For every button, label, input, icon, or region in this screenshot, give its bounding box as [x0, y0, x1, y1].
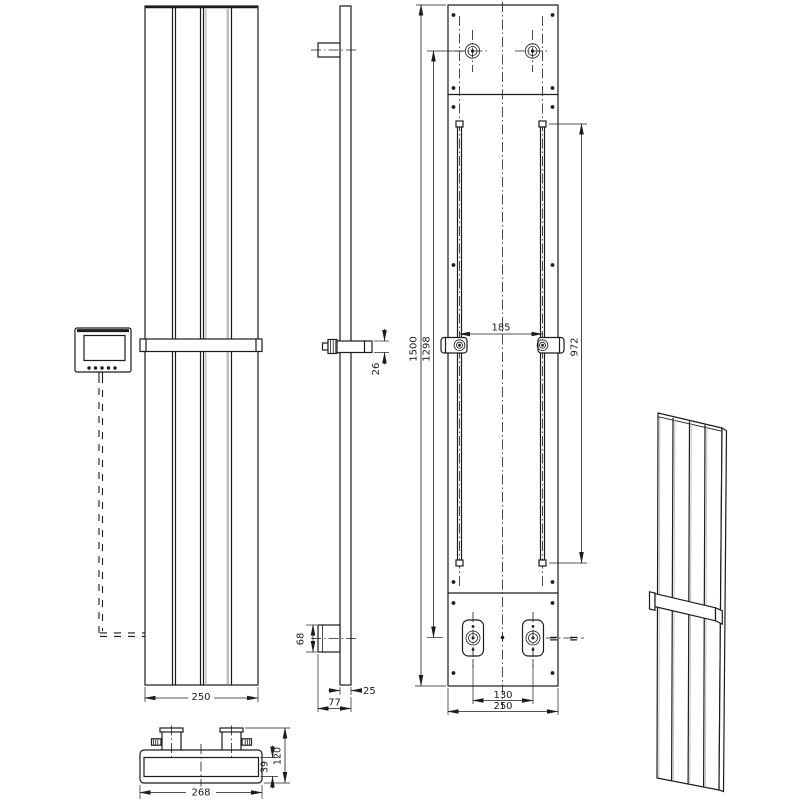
controller-screen: [84, 336, 125, 361]
dim-label-towel-height: 26: [371, 363, 382, 376]
dim-towel-height: 26: [371, 329, 389, 375]
screw-hole: [551, 601, 555, 605]
towel-bar-front: [140, 339, 262, 352]
dim-label-rail-length: 972: [570, 337, 581, 356]
bracket-screw-center: [458, 344, 461, 347]
screw-hole: [551, 580, 555, 584]
dim-label-profile-depth: 25: [363, 686, 376, 697]
front-view: 250: [140, 6, 262, 703]
controller-button: [107, 366, 110, 369]
equal-mark: =: [569, 632, 578, 645]
dim-label-overall-height: 1500: [409, 336, 420, 361]
dim-label-bracket-height: 68: [296, 633, 307, 646]
screw-hole: [452, 105, 456, 109]
screw-hole: [551, 86, 555, 90]
back-view: 185 1500 1298 972: [409, 2, 588, 715]
screw-hole: [452, 13, 456, 17]
controller-cable: [99, 372, 145, 636]
dim-front-width: 250: [145, 687, 258, 703]
technical-drawing: 250: [0, 0, 800, 800]
dim-label-valve-spacing: 130: [493, 690, 512, 701]
screw-hole: [452, 86, 456, 90]
rail-cap: [456, 121, 463, 127]
controller-button: [113, 366, 116, 369]
dim-label-top-depth: 120: [273, 747, 284, 765]
valve-body: [242, 739, 252, 745]
center-mark: [501, 636, 505, 640]
screw-hole: [551, 671, 555, 675]
screw-hole: [452, 263, 456, 267]
bracket-screw-center: [541, 344, 544, 347]
dim-profile-depth: 25: [329, 686, 376, 697]
dim-label-total-depth: 77: [328, 698, 341, 709]
dim-label-body-depth: 39: [260, 761, 271, 773]
towel-bar-arm: [337, 341, 372, 353]
screw-hole: [452, 671, 456, 675]
towel-bracket-right: [537, 338, 564, 354]
screw-hole: [452, 580, 456, 584]
dim-label-front-width: 250: [191, 692, 210, 703]
screw-hole: [452, 601, 456, 605]
iso-towel-cap-right: [716, 608, 723, 624]
dim-label-towel-width: 268: [191, 788, 210, 799]
screw-hole: [551, 263, 555, 267]
dim-towel-width: 268: [140, 785, 262, 799]
dim-label-rail-spacing: 185: [491, 323, 510, 334]
rail-cap: [456, 560, 463, 566]
towel-bar: [140, 339, 262, 352]
dim-label-connection-span: 1298: [422, 336, 433, 361]
bleed-valve-left: [152, 739, 162, 745]
dim-label-back-width: 250: [493, 701, 512, 712]
rail-cap: [539, 121, 546, 127]
controller-button: [94, 366, 97, 369]
controller-button: [100, 366, 103, 369]
towel-bar-side: [323, 340, 373, 354]
side-view: 26 68 25 77: [296, 6, 390, 712]
controller-button: [87, 366, 90, 369]
iso-view: [650, 413, 727, 792]
controller: [75, 328, 131, 372]
towel-bar-screw: [323, 343, 329, 350]
screw-hole: [551, 105, 555, 109]
bleed-valve-right: [242, 739, 252, 745]
equal-spacing-marks: = =: [546, 632, 584, 645]
towel-bracket-left: [441, 338, 467, 354]
iso-towel-cap-left: [650, 592, 656, 610]
screw-hole: [551, 13, 555, 17]
valve-body: [152, 739, 162, 745]
top-view: 39 120 268: [140, 726, 290, 800]
rail-cap: [539, 560, 546, 566]
equal-mark: =: [549, 632, 558, 645]
